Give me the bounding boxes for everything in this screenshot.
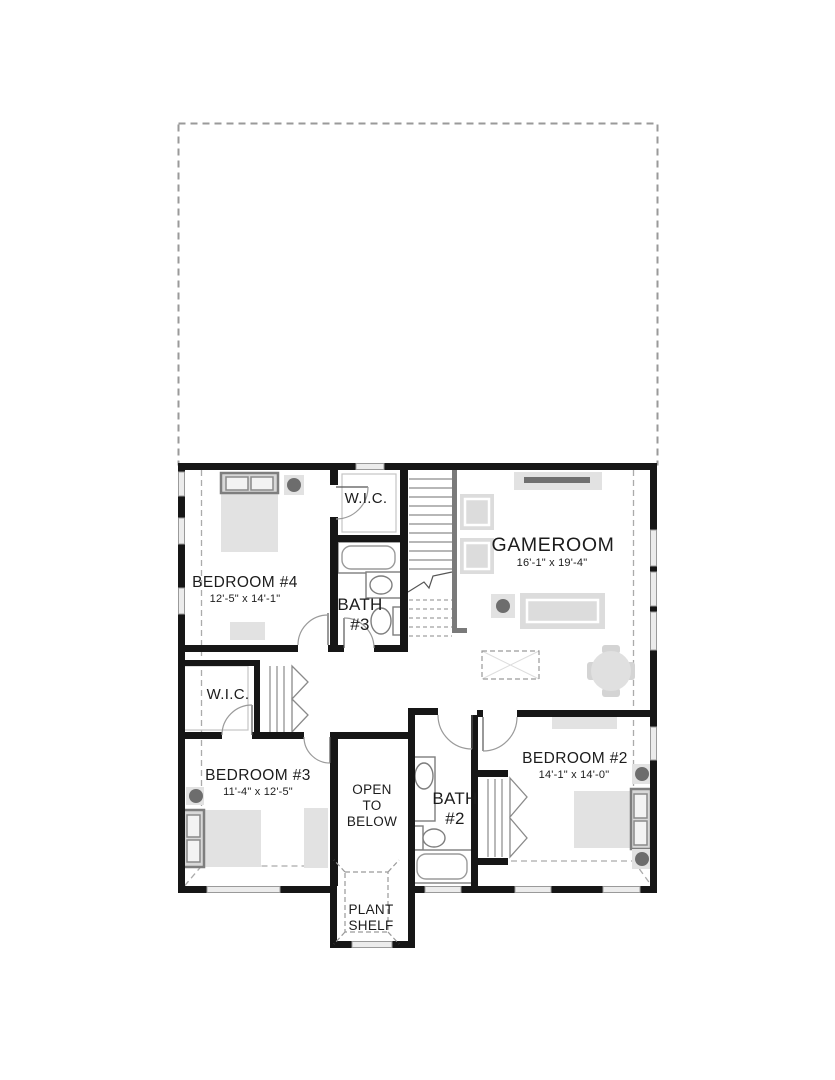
bed xyxy=(221,492,278,552)
tv-icon xyxy=(524,477,590,483)
dims-bedroom2: 14'-1" x 14'-0" xyxy=(539,769,610,781)
pillow xyxy=(634,821,647,845)
label-plant-line2: SHELF xyxy=(348,918,393,933)
bedroom4-furniture xyxy=(221,473,304,640)
lamp-icon xyxy=(635,852,649,866)
wall-closet-stub xyxy=(471,770,508,777)
stair-railing-return xyxy=(452,628,467,633)
wall-bedroom4-bottom xyxy=(178,645,298,652)
window xyxy=(651,612,657,650)
wall-bedroom2-top xyxy=(477,710,483,717)
window xyxy=(425,887,461,893)
dresser xyxy=(304,808,328,868)
pillow xyxy=(634,794,647,818)
round-table-with-chairs xyxy=(587,645,635,697)
door-bath2 xyxy=(438,715,472,749)
stair-break-line xyxy=(408,572,452,592)
label-bath3-line2: #3 xyxy=(350,615,370,634)
window xyxy=(179,518,185,544)
door-bedroom2 xyxy=(483,717,517,751)
window xyxy=(515,887,551,893)
floor-plan-drawing: W.I.C. BEDROOM #4 12'-5" x 14'-1" BATH #… xyxy=(0,0,835,1080)
wall-wic2-top xyxy=(178,660,260,666)
window xyxy=(651,530,657,566)
window xyxy=(207,887,280,893)
gameroom-furniture xyxy=(460,472,635,697)
dims-bedroom3: 11'-4" x 12'-5" xyxy=(223,786,293,798)
label-bedroom2: BEDROOM #2 xyxy=(522,750,628,767)
label-gameroom: GAMEROOM xyxy=(492,534,615,556)
label-open-line3: BELOW xyxy=(347,814,397,829)
bifold-doors xyxy=(292,666,308,732)
door-bedroom3 xyxy=(304,737,330,763)
future-table-dashed xyxy=(482,651,539,679)
unfinished-area-dashed-outline xyxy=(179,124,658,465)
window xyxy=(179,472,185,496)
label-bath2-line1: BATH xyxy=(432,789,477,808)
wall-bath3-bottom xyxy=(374,645,408,652)
stairs-dashed-below xyxy=(409,600,452,636)
label-open-line2: TO xyxy=(362,798,381,813)
window xyxy=(356,464,384,470)
bathtub-basin xyxy=(417,854,467,879)
wall-wic-left xyxy=(330,470,338,485)
label-bedroom4: BEDROOM #4 xyxy=(192,574,298,591)
pillow xyxy=(251,477,273,490)
bed xyxy=(203,810,261,867)
round-table xyxy=(591,651,631,691)
label-plant-line1: PLANT xyxy=(348,902,393,917)
label-bedroom3: BEDROOM #3 xyxy=(205,767,311,784)
window xyxy=(352,942,392,948)
wall-wic2-right xyxy=(254,660,260,739)
label-open-line1: OPEN xyxy=(352,782,391,797)
bedroom2-closet-shelves xyxy=(488,779,502,857)
wall-wic-bath-divider xyxy=(336,535,402,542)
wall-bay-right xyxy=(408,886,415,948)
pillow xyxy=(226,477,248,490)
pillow xyxy=(187,815,200,837)
label-wic-bedroom3: W.I.C. xyxy=(207,686,250,703)
window xyxy=(651,727,657,760)
lamp-icon xyxy=(635,767,649,781)
rug xyxy=(230,622,265,640)
stair-railing xyxy=(452,470,457,628)
bed xyxy=(574,791,631,848)
wall-top xyxy=(178,463,657,470)
wall-bedroom3-top xyxy=(178,732,222,739)
wall-bay-left xyxy=(330,886,337,948)
label-bath2-line2: #2 xyxy=(445,809,465,828)
stairs xyxy=(408,470,467,636)
label-wic-bedroom4: W.I.C. xyxy=(345,490,388,507)
wall-bedroom2-top xyxy=(517,710,657,717)
lamp-icon xyxy=(496,599,510,613)
door-bedroom4 xyxy=(298,613,328,645)
wall-bath2-top xyxy=(408,708,438,715)
floor-plan-page: W.I.C. BEDROOM #4 12'-5" x 14'-1" BATH #… xyxy=(0,0,835,1080)
lamp-icon xyxy=(287,478,301,492)
bedroom2-furniture xyxy=(552,716,652,869)
wall-right xyxy=(650,463,657,893)
dresser xyxy=(552,716,617,729)
toilet xyxy=(423,829,445,847)
window xyxy=(651,572,657,606)
wall-bath2-left xyxy=(408,715,415,886)
wall-bedroom3-top xyxy=(252,732,304,739)
bathtub-basin xyxy=(342,546,395,569)
sink xyxy=(370,576,392,594)
sofa xyxy=(520,593,605,629)
wall-stairwell-left xyxy=(400,470,408,652)
wall-open-below-top xyxy=(338,732,415,739)
hall-closet-shelves xyxy=(270,666,284,732)
bath3-fixtures xyxy=(338,542,402,635)
bifold-doors xyxy=(510,778,527,857)
wall-bath3-bottom xyxy=(336,645,344,652)
window xyxy=(603,887,640,893)
sink xyxy=(415,763,433,789)
label-bath3-line1: BATH xyxy=(337,595,382,614)
lamp-icon xyxy=(189,789,203,803)
bedroom3-furniture xyxy=(183,787,328,868)
wall-closet-stub xyxy=(471,858,508,865)
dims-gameroom: 16'-1" x 19'-4" xyxy=(517,557,588,569)
window xyxy=(179,588,185,614)
dims-bedroom4: 12'-5" x 14'-1" xyxy=(210,593,281,605)
pillow xyxy=(187,840,200,862)
